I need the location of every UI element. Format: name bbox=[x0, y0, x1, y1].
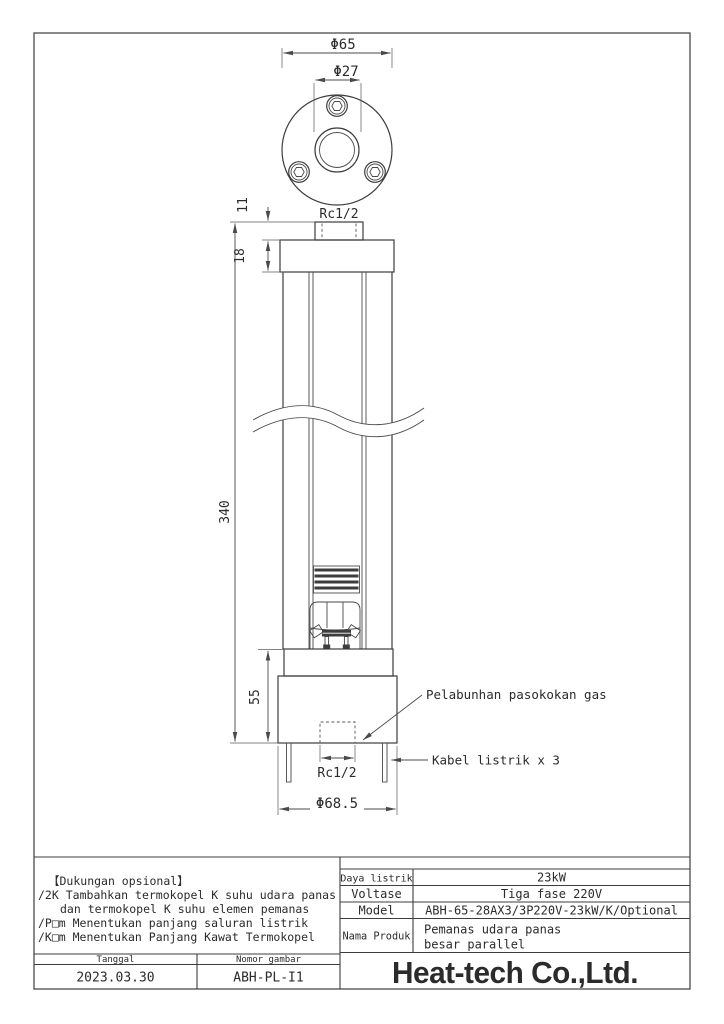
flange-block bbox=[280, 240, 394, 272]
body-walls bbox=[283, 272, 392, 649]
element-holder bbox=[310, 602, 361, 649]
gas-port-hidden bbox=[320, 722, 355, 743]
heater-element-stack bbox=[314, 566, 360, 593]
top-fitting-thread-label: Rc1/2 bbox=[319, 207, 358, 222]
bolt-hole-left bbox=[289, 162, 310, 183]
top-view-flange: Φ65 Φ27 bbox=[282, 37, 392, 205]
dimensions: 340 11 18 55 Rc1/2 Φ68.5 bbox=[218, 197, 397, 815]
dim-phi68-5-label: Φ68.5 bbox=[316, 796, 358, 812]
inner-pipe-walls bbox=[309, 272, 366, 649]
spec-value-power: 23kW bbox=[537, 871, 567, 885]
dim-11-label: 11 bbox=[236, 197, 251, 213]
note-line-3: /P□m Menentukan panjang saluran listrik bbox=[38, 916, 308, 930]
technical-drawing: Φ65 Φ27 Rc1/2 bbox=[0, 0, 724, 1024]
notes-title: 【Dukungan opsional】 bbox=[48, 874, 189, 888]
spec-value-product-line2: besar parallel bbox=[424, 938, 525, 952]
dim-phi27-label: Φ27 bbox=[333, 64, 358, 80]
title-block: 【Dukungan opsional】 /2K Tambahkan termok… bbox=[34, 857, 690, 990]
optional-notes: 【Dukungan opsional】 /2K Tambahkan termok… bbox=[38, 874, 336, 944]
bolt-hole-right bbox=[365, 162, 386, 183]
bottom-port-thread-label: Rc1/2 bbox=[317, 766, 356, 781]
dim-340-label: 340 bbox=[218, 500, 233, 523]
spec-label-model: Model bbox=[358, 904, 394, 918]
base-block bbox=[278, 676, 397, 743]
dim-18-label: 18 bbox=[233, 248, 248, 264]
neck-block bbox=[284, 649, 393, 676]
dim-phi65-label: Φ65 bbox=[330, 37, 355, 53]
spec-label-product: Nama Produk bbox=[343, 930, 411, 943]
spec-value-model: ABH-65-28AX3/3P220V-23kW/K/Optional bbox=[425, 904, 678, 918]
gas-supply-callout: Pelabunhan pasokokan gas bbox=[426, 687, 607, 702]
spec-table: Daya listrik 23kW Voltase Tiga fase 220V… bbox=[340, 871, 678, 952]
break-lines bbox=[253, 406, 424, 437]
spec-label-power: Daya listrik bbox=[340, 874, 412, 885]
spec-value-voltage: Tiga fase 220V bbox=[501, 887, 602, 901]
revision-block: Tanggal Nomor gambar 2023.03.30 ABH-PL-I… bbox=[76, 955, 303, 986]
drawing-page: Φ65 Φ27 Rc1/2 bbox=[0, 0, 724, 1024]
callouts: Pelabunhan pasokokan gas Kabel listrik x… bbox=[363, 687, 607, 768]
date-value: 2023.03.30 bbox=[76, 971, 154, 986]
side-view-heater: Rc1/2 bbox=[253, 207, 424, 782]
date-label: Tanggal bbox=[97, 955, 135, 965]
bolt-hole-top bbox=[327, 96, 348, 117]
dim-55-label: 55 bbox=[248, 689, 263, 705]
spec-label-voltage: Voltase bbox=[351, 887, 402, 901]
note-line-2: dan termokopel K suhu elemen pemanas bbox=[60, 902, 309, 916]
note-line-1: /2K Tambahkan termokopel K suhu udara pa… bbox=[38, 888, 336, 902]
company-logo: Heat-tech Co.,Ltd. bbox=[392, 955, 638, 990]
note-line-4: /K□m Menentukan Panjang Kawat Termokopel bbox=[38, 930, 315, 944]
spec-value-product-line1: Pemanas udara panas bbox=[424, 923, 561, 937]
cable-right bbox=[383, 743, 388, 782]
power-cable-callout: Kabel listrik x 3 bbox=[432, 753, 560, 768]
cable-left bbox=[287, 743, 292, 782]
drawing-number-value: ABH-PL-I1 bbox=[233, 971, 303, 986]
drawing-number-label: Nomor gambar bbox=[236, 955, 302, 965]
